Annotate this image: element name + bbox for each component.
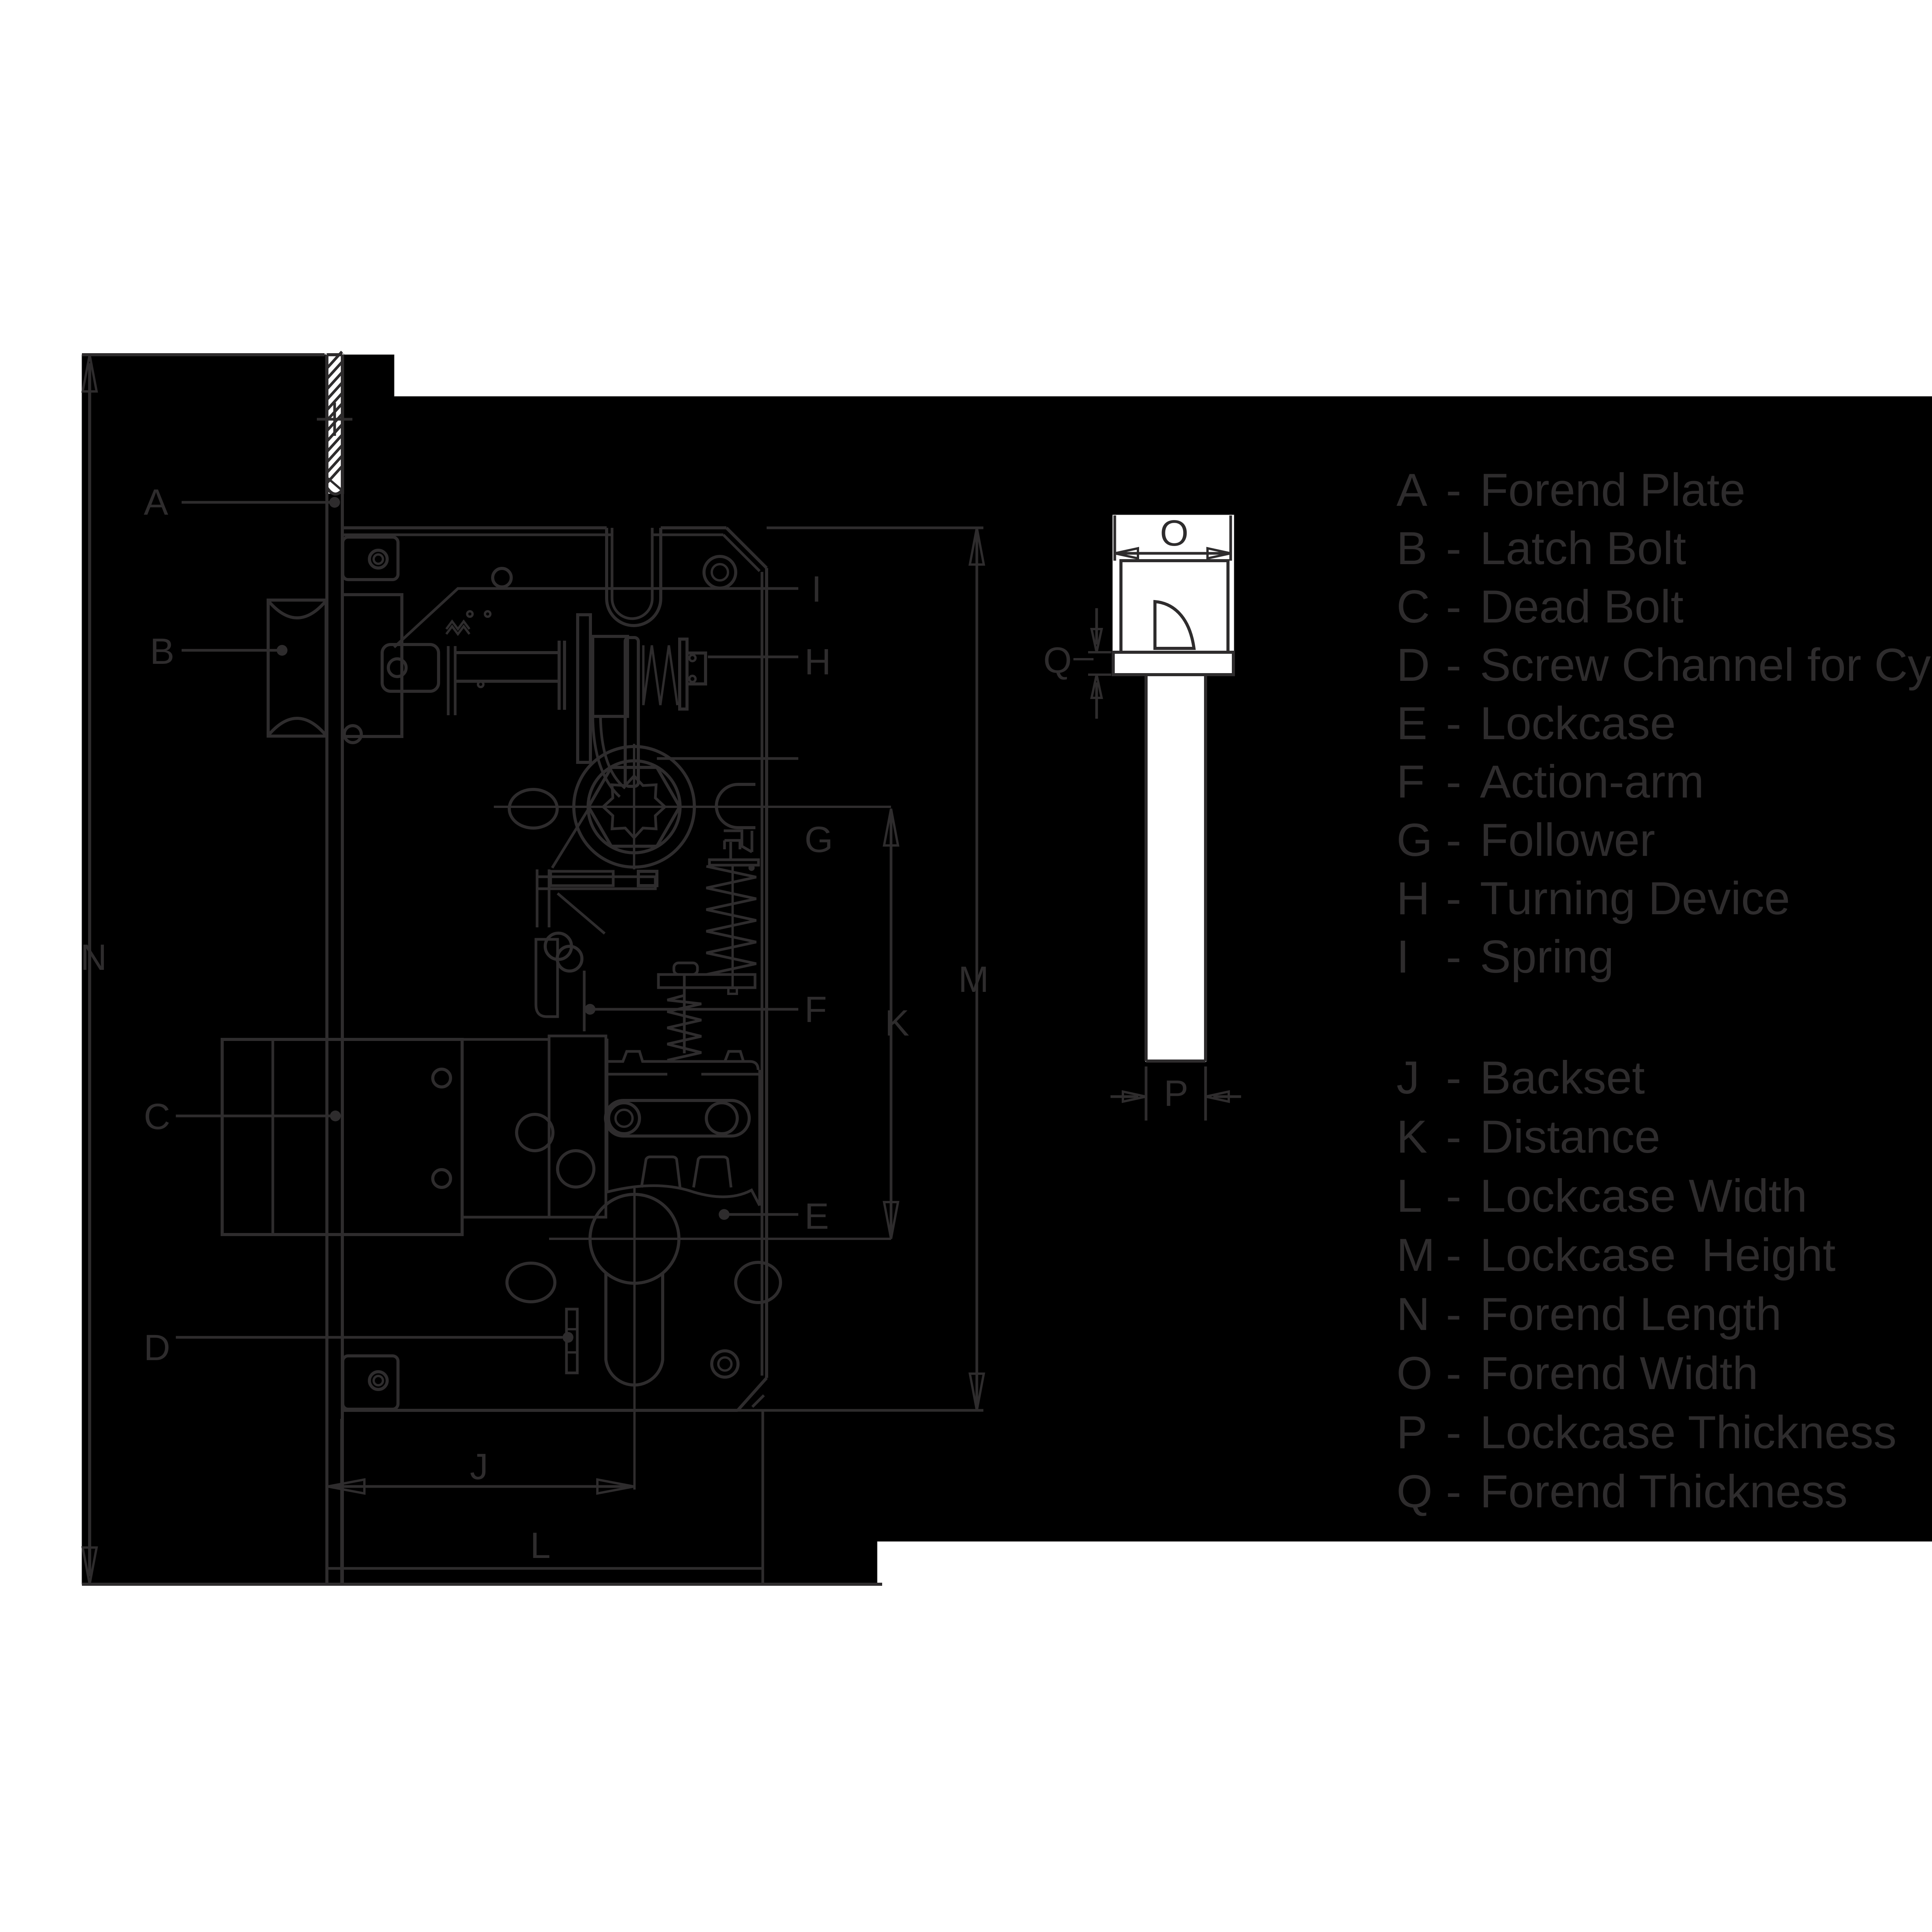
svg-text:J: J [1396, 1052, 1420, 1104]
svg-text:-: - [1446, 1466, 1461, 1517]
svg-text:Backset: Backset [1480, 1052, 1645, 1104]
svg-text:D: D [1396, 639, 1430, 691]
svg-text:-: - [1446, 1111, 1461, 1163]
svg-text:C: C [1396, 581, 1430, 633]
svg-text:Action-arm: Action-arm [1480, 756, 1704, 808]
svg-text:Distance: Distance [1480, 1111, 1660, 1163]
svg-text:-: - [1446, 1052, 1461, 1104]
svg-text:Lockcase Thickness: Lockcase Thickness [1480, 1406, 1896, 1458]
svg-text:L: L [1396, 1170, 1422, 1222]
svg-text:Forend Plate: Forend Plate [1480, 464, 1745, 516]
svg-text:B: B [150, 631, 174, 672]
svg-text:E: E [804, 1196, 829, 1237]
svg-text:M: M [1396, 1229, 1435, 1281]
svg-text:F: F [1396, 756, 1425, 808]
svg-text:E: E [1396, 697, 1427, 749]
svg-text:Forend Width: Forend Width [1480, 1347, 1758, 1399]
svg-text:G: G [804, 819, 833, 860]
svg-text:Latch Bolt: Latch Bolt [1480, 522, 1686, 574]
svg-text:A: A [144, 482, 168, 523]
svg-text:-: - [1446, 1347, 1461, 1399]
svg-text:P: P [1396, 1406, 1427, 1458]
svg-text:-: - [1446, 697, 1461, 749]
svg-text:Follower: Follower [1480, 814, 1655, 866]
svg-text:-: - [1446, 1229, 1461, 1281]
svg-text:C: C [144, 1096, 170, 1137]
svg-text:-: - [1446, 522, 1461, 574]
svg-text:L: L [530, 1525, 551, 1566]
svg-text:Turning Device: Turning Device [1480, 872, 1790, 924]
svg-text:Lockcase Height: Lockcase Height [1480, 1229, 1836, 1281]
svg-text:Q: Q [1396, 1466, 1432, 1517]
svg-text:Lockcase: Lockcase [1480, 697, 1676, 749]
svg-text:Q: Q [1043, 640, 1072, 681]
svg-text:-: - [1446, 1288, 1461, 1340]
svg-text:F: F [804, 989, 827, 1030]
svg-text:D: D [144, 1327, 170, 1368]
svg-text:N: N [1396, 1288, 1430, 1340]
svg-text:B: B [1396, 522, 1427, 574]
svg-text:Forend Thickness: Forend Thickness [1480, 1466, 1848, 1517]
svg-text:H: H [804, 641, 831, 682]
svg-text:-: - [1446, 872, 1461, 924]
svg-text:-: - [1446, 639, 1461, 691]
svg-text:H: H [1396, 872, 1430, 924]
svg-text:K: K [1396, 1111, 1427, 1163]
svg-text:N: N [80, 937, 107, 978]
svg-text:-: - [1446, 931, 1461, 983]
svg-text:I: I [1396, 931, 1409, 983]
svg-text:-: - [1446, 814, 1461, 866]
svg-text:Forend Length: Forend Length [1480, 1288, 1782, 1340]
svg-text:Spring: Spring [1480, 931, 1614, 983]
svg-text:A: A [1396, 464, 1427, 516]
svg-text:P: P [1164, 1073, 1188, 1114]
svg-text:-: - [1446, 1170, 1461, 1222]
svg-text:-: - [1446, 1406, 1461, 1458]
svg-text:K: K [885, 1003, 909, 1044]
svg-text:J: J [470, 1446, 488, 1487]
svg-text:-: - [1446, 756, 1461, 808]
svg-text:-: - [1446, 464, 1461, 516]
svg-text:Lockcase Width: Lockcase Width [1480, 1170, 1807, 1222]
svg-text:O: O [1160, 513, 1189, 554]
svg-text:I: I [811, 569, 821, 610]
svg-text:Dead Bolt: Dead Bolt [1480, 581, 1684, 633]
svg-text:G: G [1396, 814, 1432, 866]
svg-text:O: O [1396, 1347, 1432, 1399]
svg-text:M: M [958, 959, 989, 1000]
svg-text:Screw Channel for Cylinder: Screw Channel for Cylinder [1480, 639, 1932, 691]
svg-text:-: - [1446, 581, 1461, 633]
